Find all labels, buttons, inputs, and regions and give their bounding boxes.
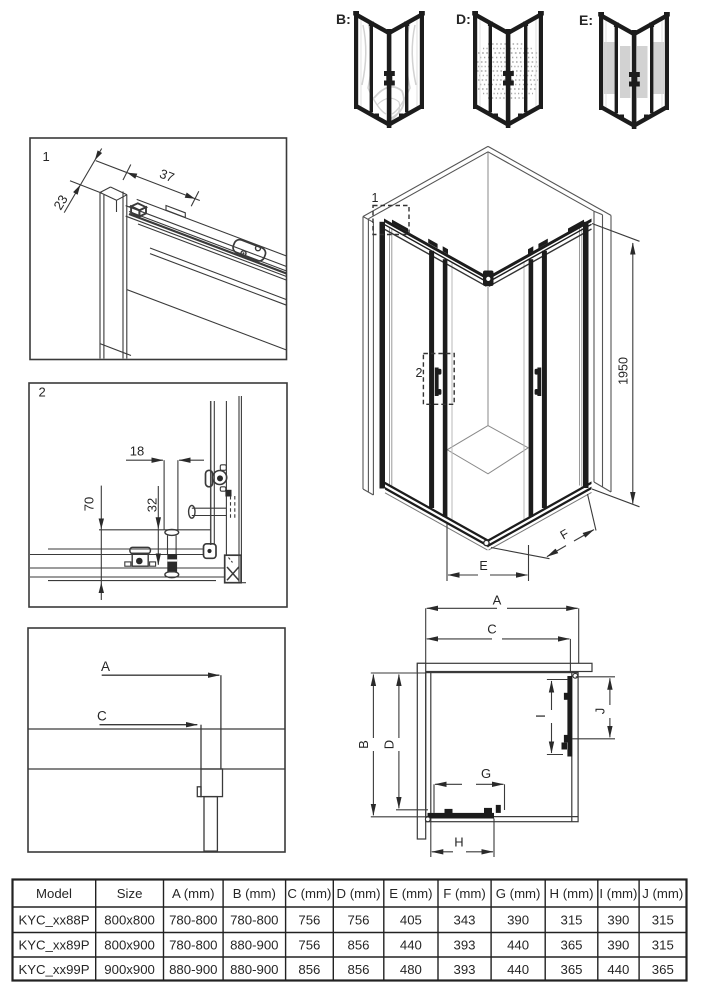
svg-text:Size: Size <box>117 886 143 901</box>
svg-text:1: 1 <box>43 149 50 164</box>
svg-text:A: A <box>493 593 502 608</box>
svg-text:1950: 1950 <box>617 357 631 385</box>
svg-text:480: 480 <box>400 962 422 977</box>
svg-text:756: 756 <box>298 913 320 928</box>
svg-text:315: 315 <box>652 913 674 928</box>
svg-text:A: A <box>101 659 110 674</box>
svg-text:440: 440 <box>607 962 629 977</box>
svg-text:C: C <box>487 622 496 637</box>
svg-text:E:: E: <box>579 12 593 28</box>
svg-text:I: I <box>533 714 548 718</box>
svg-text:I (mm): I (mm) <box>599 886 637 901</box>
svg-text:KYC_xx89P: KYC_xx89P <box>18 938 89 953</box>
svg-text:393: 393 <box>453 938 475 953</box>
svg-text:780-800: 780-800 <box>169 938 217 953</box>
svg-text:Model: Model <box>36 886 72 901</box>
svg-text:A (mm): A (mm) <box>172 886 215 901</box>
svg-text:32: 32 <box>145 498 160 512</box>
svg-text:C: C <box>97 709 107 724</box>
svg-text:1: 1 <box>372 191 379 205</box>
svg-text:880-900: 880-900 <box>169 962 217 977</box>
svg-text:900x900: 900x900 <box>104 962 155 977</box>
svg-text:880-900: 880-900 <box>230 962 278 977</box>
svg-text:B (mm): B (mm) <box>233 886 276 901</box>
svg-text:405: 405 <box>400 913 422 928</box>
svg-text:315: 315 <box>560 913 582 928</box>
svg-text:343: 343 <box>453 913 475 928</box>
svg-text:E (mm): E (mm) <box>389 886 432 901</box>
svg-text:315: 315 <box>652 938 674 953</box>
svg-text:D: D <box>382 740 397 749</box>
svg-text:B: B <box>356 740 371 749</box>
svg-text:70: 70 <box>82 497 97 511</box>
svg-text:18: 18 <box>130 444 144 459</box>
svg-text:KYC_xx99P: KYC_xx99P <box>18 962 89 977</box>
svg-text:H (mm): H (mm) <box>550 886 594 901</box>
svg-text:880-900: 880-900 <box>230 938 278 953</box>
svg-text:780-800: 780-800 <box>169 913 217 928</box>
svg-text:856: 856 <box>298 962 320 977</box>
svg-text:756: 756 <box>347 913 369 928</box>
svg-text:365: 365 <box>652 962 674 977</box>
svg-text:440: 440 <box>507 962 529 977</box>
svg-text:J (mm): J (mm) <box>642 886 683 901</box>
svg-text:390: 390 <box>607 938 629 953</box>
svg-text:800x800: 800x800 <box>104 913 155 928</box>
svg-text:440: 440 <box>400 938 422 953</box>
svg-text:D (mm): D (mm) <box>337 886 381 901</box>
svg-text:D:: D: <box>456 11 471 27</box>
svg-text:365: 365 <box>560 962 582 977</box>
svg-text:800x900: 800x900 <box>104 938 155 953</box>
svg-text:440: 440 <box>507 938 529 953</box>
svg-text:B:: B: <box>336 11 351 27</box>
svg-text:856: 856 <box>347 962 369 977</box>
svg-text:856: 856 <box>347 938 369 953</box>
svg-text:H: H <box>454 835 463 850</box>
svg-text:C (mm): C (mm) <box>287 886 331 901</box>
svg-text:F (mm): F (mm) <box>443 886 485 901</box>
svg-text:390: 390 <box>607 913 629 928</box>
svg-text:G (mm): G (mm) <box>496 886 541 901</box>
svg-text:J: J <box>593 708 608 715</box>
svg-text:780-800: 780-800 <box>230 913 278 928</box>
svg-text:KYC_xx88P: KYC_xx88P <box>18 913 89 928</box>
svg-text:390: 390 <box>507 913 529 928</box>
svg-text:G: G <box>481 766 491 781</box>
svg-text:393: 393 <box>453 962 475 977</box>
svg-text:365: 365 <box>560 938 582 953</box>
svg-text:756: 756 <box>298 938 320 953</box>
svg-text:E: E <box>479 559 487 573</box>
svg-text:2: 2 <box>39 385 46 400</box>
svg-text:2: 2 <box>416 366 423 380</box>
